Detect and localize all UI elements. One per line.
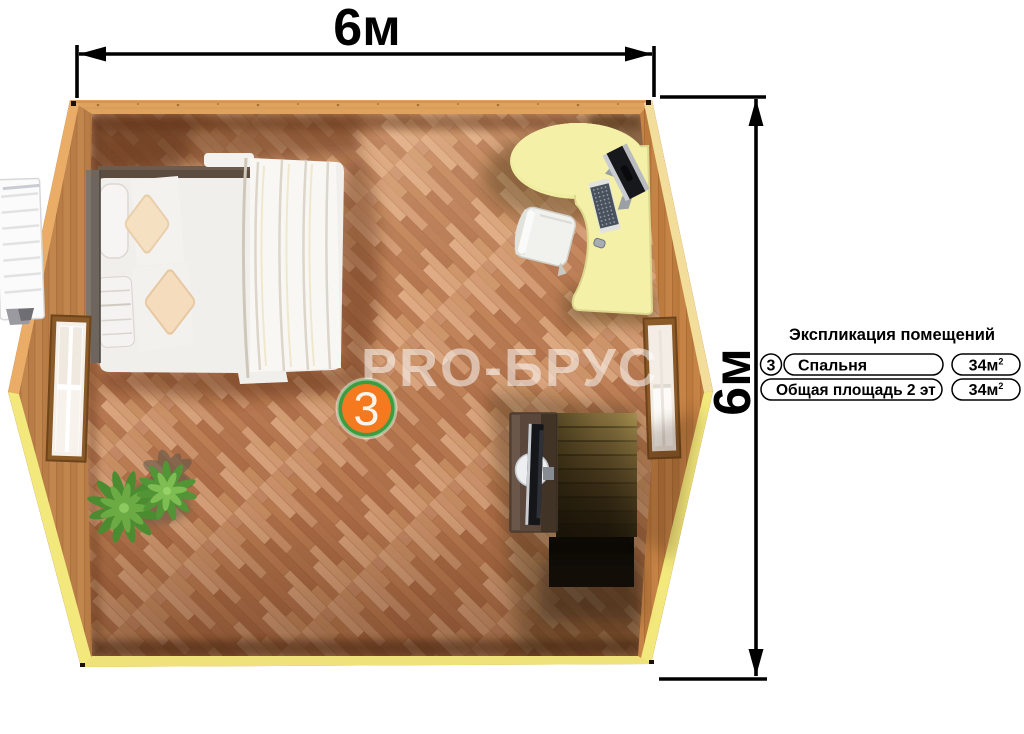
svg-text:Экспликация помещений: Экспликация помещений bbox=[789, 326, 995, 344]
svg-text:Спальня: Спальня bbox=[798, 358, 867, 375]
svg-text:3: 3 bbox=[353, 382, 379, 435]
svg-text:3: 3 bbox=[767, 358, 776, 375]
svg-text:Общая площадь 2 эт: Общая площадь 2 эт bbox=[776, 382, 936, 399]
svg-text:34м2: 34м2 bbox=[969, 357, 1004, 375]
svg-text:6м: 6м bbox=[333, 0, 400, 57]
svg-text:6м: 6м bbox=[704, 348, 762, 415]
svg-text:34м2: 34м2 bbox=[969, 381, 1004, 399]
svg-text:PRO-БРУС: PRO-БРУС bbox=[361, 338, 659, 398]
